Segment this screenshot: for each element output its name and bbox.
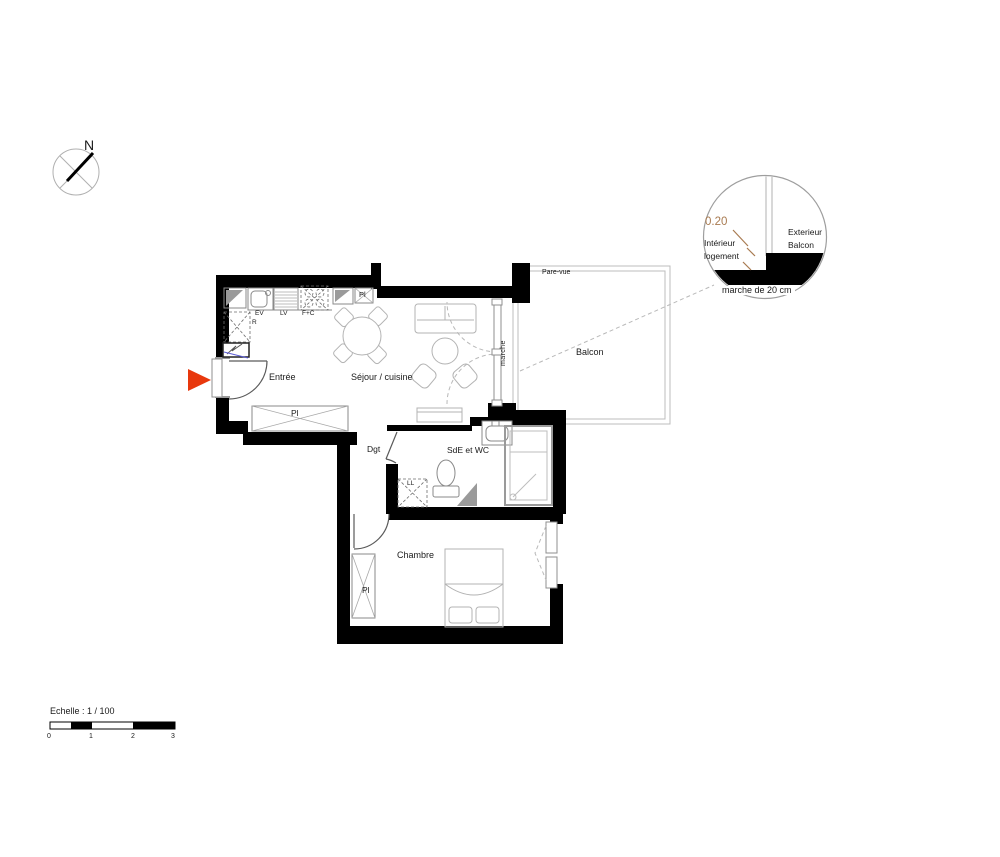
scale-title: Echelle : 1 / 100 (50, 707, 115, 716)
room-label-dgt: Dgt (367, 445, 380, 454)
entrance-arrow (188, 369, 211, 391)
scale-tick-3: 3 (171, 733, 175, 740)
sideboard (417, 408, 462, 422)
toilet (433, 460, 459, 497)
step-upper (766, 253, 846, 271)
kitchen-duct-2 (333, 288, 353, 304)
scale-bar (50, 722, 175, 729)
scale-tick-0: 0 (47, 733, 51, 740)
room-label-balcon: Balcon (576, 348, 604, 357)
step-lower (695, 270, 846, 285)
room-label-sde: SdE et WC (447, 446, 489, 455)
compass-rose (53, 149, 99, 195)
detail-exterior-line2: Balcon (788, 241, 814, 250)
floor-plan-drawing (0, 0, 1000, 857)
detail-exterior-line1: Exterieur (788, 228, 822, 237)
sde-door (386, 432, 397, 463)
closet-label-entree: Pl (291, 409, 299, 418)
oven-cooktop (301, 286, 328, 310)
closet-label-kitchen: Pl (359, 291, 366, 299)
sde-duct (457, 483, 477, 506)
fixture-label-sink: EV (255, 311, 264, 318)
armchair-left (410, 362, 438, 390)
entrance-door (212, 357, 267, 399)
scale-tick-2: 2 (131, 733, 135, 740)
compass-north-label: N (84, 138, 94, 152)
coffee-table (432, 338, 458, 364)
detail-dimension: 0.20 (705, 217, 727, 229)
detail-leader-line (520, 285, 714, 371)
entry-closet (252, 406, 348, 431)
balcony-step-label: marche (500, 340, 507, 366)
scale-tick-1: 1 (89, 733, 93, 740)
washbasin (482, 421, 512, 445)
electrical-panel (223, 343, 249, 358)
detail-callout (695, 176, 846, 299)
detail-interior-line2: logement (704, 252, 739, 261)
dishwasher (274, 288, 298, 310)
room-label-entree: Entrée (269, 373, 296, 382)
bedroom-door (354, 514, 389, 549)
detail-interior-line1: Intérieur (704, 239, 735, 248)
closet-label-chambre: Pl (362, 586, 370, 595)
detail-caption: marche de 20 cm (719, 286, 795, 295)
sofa (415, 304, 476, 333)
fixture-label-washer: LL (407, 481, 414, 488)
floor-plan-page: N Entrée Séjour / cuisine Dgt SdE et WC … (0, 0, 1000, 857)
fixture-label-oven: F+C (302, 311, 314, 318)
balcony-screen-label: Pare-vue (542, 269, 570, 276)
balcony-door (447, 299, 502, 406)
room-label-sejour: Séjour / cuisine (351, 373, 413, 382)
fixture-label-fridge: R (252, 320, 257, 327)
bedroom-window (535, 522, 557, 588)
fixture-label-dishwasher: LV (280, 311, 287, 318)
room-label-chambre: Chambre (397, 551, 434, 560)
balcony-railing (513, 266, 670, 424)
dining-set (332, 306, 388, 365)
bed (445, 549, 503, 627)
